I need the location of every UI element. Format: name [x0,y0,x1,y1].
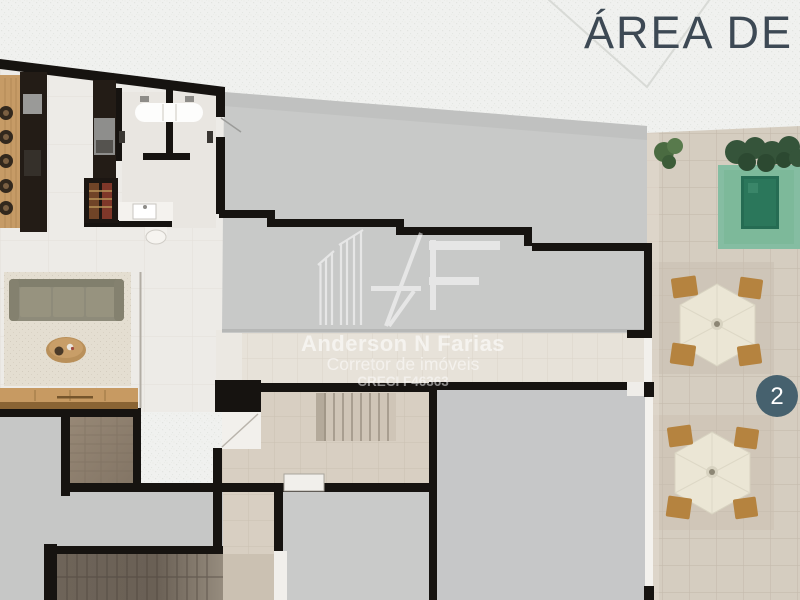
svg-text:Corretor de imóveis: Corretor de imóveis [327,354,480,374]
svg-text:ÁREA DE: ÁREA DE [584,7,793,58]
svg-text:Anderson N Farias: Anderson N Farias [301,331,505,356]
svg-text:CRECI F46363: CRECI F46363 [357,374,449,389]
svg-text:2: 2 [770,383,783,410]
